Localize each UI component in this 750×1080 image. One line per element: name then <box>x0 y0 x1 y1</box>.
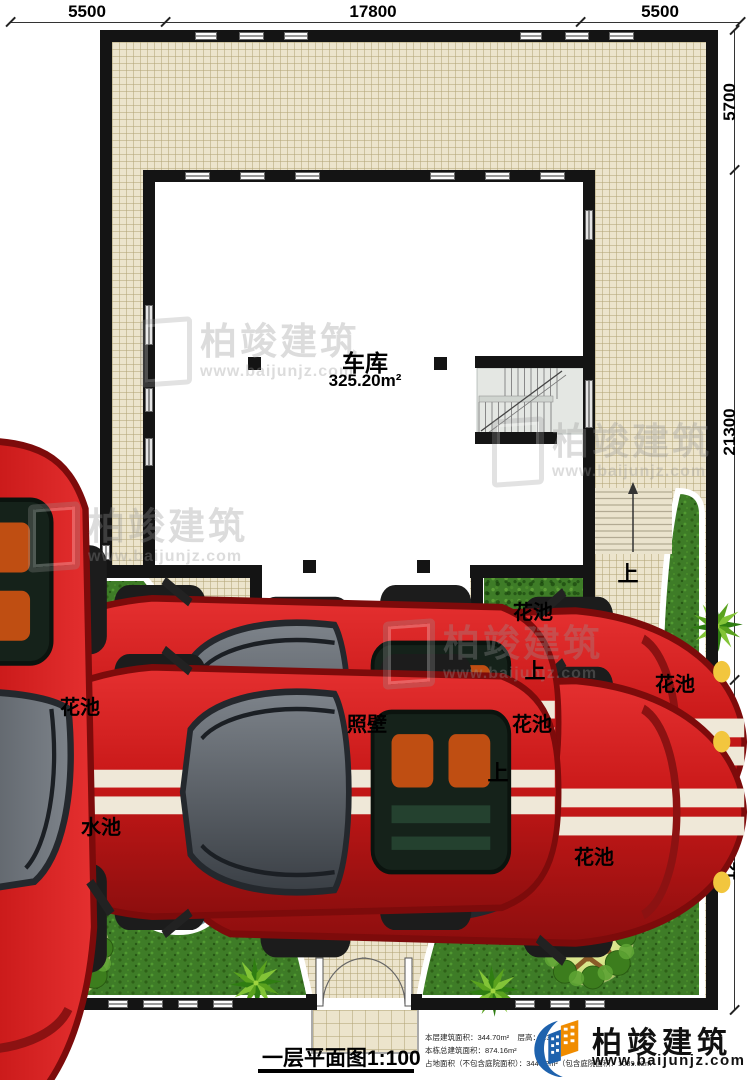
garage-area-label: 325.20m² <box>317 371 413 391</box>
flower-bed-label-bottom-right: 花池 <box>557 841 631 870</box>
flower-bed-label-box2: 花池 <box>495 708 569 737</box>
up-label-east: 上 <box>614 558 642 588</box>
cars-layer <box>0 0 750 1080</box>
screen-wall-label: 照壁 <box>330 708 404 737</box>
flower-bed-label-box1: 花池 <box>496 596 570 625</box>
flower-bed-label-strip: 花池 <box>638 668 712 697</box>
water-pool-label: 水池 <box>64 811 138 840</box>
up-label-south: 上 <box>484 757 512 787</box>
title-underline <box>258 1069 414 1073</box>
brand-website: www.baijunjz.com <box>592 1052 745 1069</box>
stat-floor-area: 本层建筑面积：344.70m² <box>425 1033 509 1042</box>
brand-logo-icon <box>528 1016 586 1080</box>
up-label-middle: 上 <box>521 655 549 685</box>
flower-bed-label-left: 花池 <box>43 691 117 720</box>
floor-plan: 5500 17800 5500 5700 21300 12900 车库 325.… <box>0 0 750 1080</box>
drawing-title: 一层平面图1:100 <box>262 1042 421 1072</box>
